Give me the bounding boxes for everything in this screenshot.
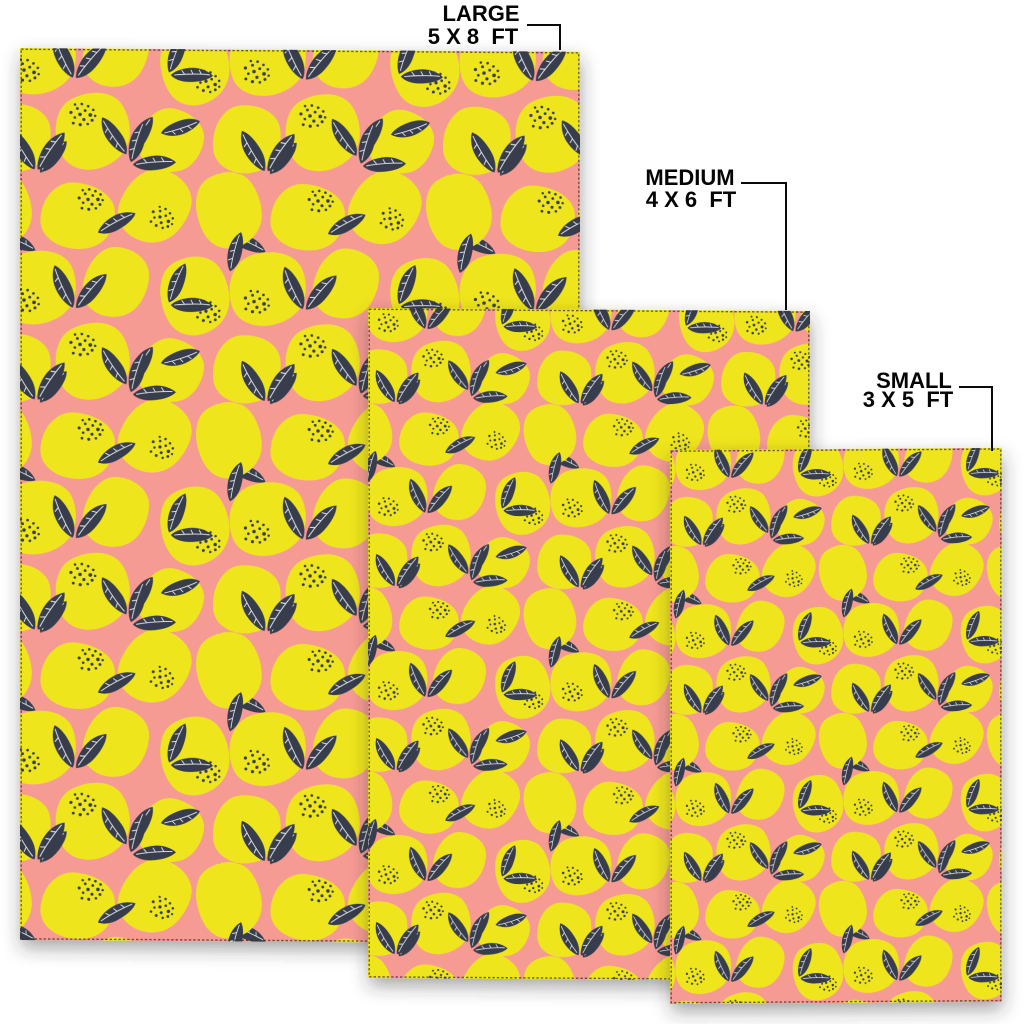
svg-text:5 X 8 FT: 5 X 8 FT bbox=[428, 24, 519, 49]
svg-text:4 X 6 FT: 4 X 6 FT bbox=[646, 187, 737, 212]
svg-text:3 X 5 FT: 3 X 5 FT bbox=[863, 387, 954, 412]
svg-text:LARGE: LARGE bbox=[443, 1, 520, 26]
